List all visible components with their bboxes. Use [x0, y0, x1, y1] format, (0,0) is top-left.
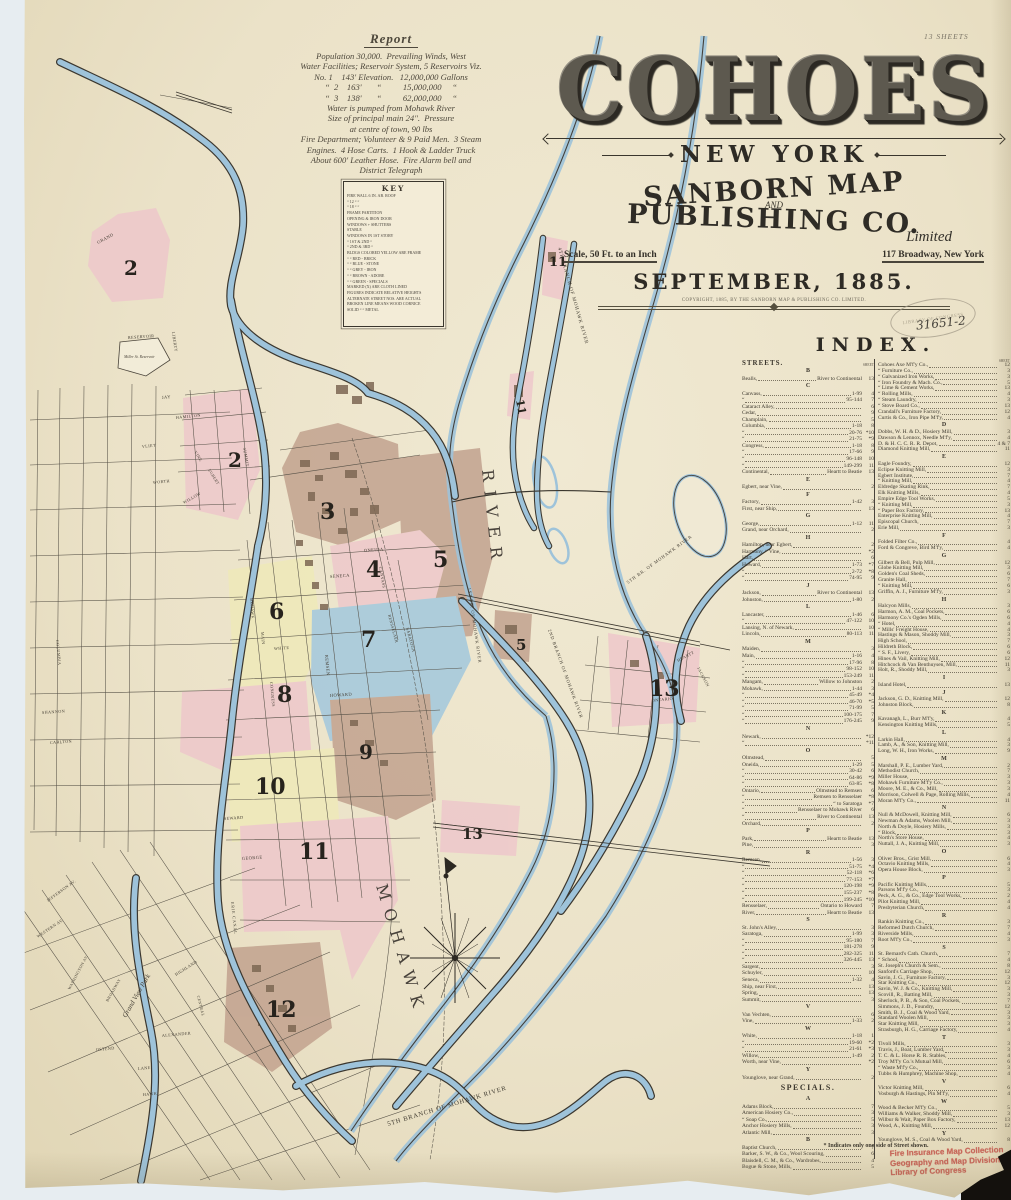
- leader-dots: [945, 701, 997, 702]
- index-entry-sheet: 2: [862, 527, 874, 534]
- index-entry-sheet: 13: [998, 683, 1010, 689]
- svg-text:WASHINGTON AV.: WASHINGTON AV.: [66, 954, 89, 991]
- leader-dots: [761, 504, 851, 505]
- leader-dots: [782, 1064, 861, 1065]
- index-letter-heading: L: [742, 603, 874, 612]
- index-entry-name: Egbert, near Vine,: [742, 484, 782, 491]
- leader-dots: [745, 819, 816, 820]
- index-entry-name: Columbia,: [742, 423, 765, 430]
- leader-dots: [935, 930, 997, 931]
- leader-dots: [745, 799, 812, 800]
- leader-dots: [939, 956, 997, 957]
- leader-dots: [757, 415, 861, 416]
- index-entry-range: 47-122: [846, 618, 862, 625]
- index-entry-name: Johnston,: [742, 597, 763, 604]
- leader-dots: [745, 703, 848, 704]
- index-entry-name: River,: [742, 910, 755, 917]
- leader-dots: [745, 901, 842, 902]
- leader-dots: [745, 745, 861, 746]
- leader-dots: [928, 672, 997, 673]
- leader-dots: [745, 434, 848, 435]
- leader-dots: [772, 1016, 861, 1017]
- index-entry-name: Kensington Knitting Mills,: [878, 723, 937, 729]
- leader-dots: [745, 1044, 848, 1045]
- report-line: Size of principal main 24". Pressure: [232, 113, 550, 123]
- index-entry-sheet: 4: [998, 1028, 1010, 1034]
- svg-text:CENTRAL: CENTRAL: [196, 995, 206, 1017]
- svg-text:ALEXANDER: ALEXANDER: [162, 1030, 192, 1038]
- leader-dots: [765, 760, 861, 761]
- report-line: No. 1 143' Elevation. 12,000,000 Gallons: [232, 72, 550, 82]
- index-entry-name: Mohawk,: [742, 686, 763, 693]
- leader-dots: [794, 1115, 861, 1116]
- leader-dots: [793, 1128, 861, 1129]
- leader-dots: [745, 1051, 848, 1052]
- leader-dots: [962, 1003, 997, 1004]
- leader-dots: [925, 910, 997, 911]
- leader-dots: [764, 690, 851, 691]
- index-entry-name: Nuttall, J. A., Knitting Mill,: [878, 842, 939, 848]
- index-entry-sheet: 11: [998, 447, 1010, 453]
- key-heading: KEY: [347, 184, 440, 193]
- index-entry-name: Vine,: [742, 1018, 754, 1025]
- svg-text:BROADWAY: BROADWAY: [105, 978, 122, 1003]
- leader-dots: [944, 1064, 997, 1065]
- leader-dots: [932, 860, 997, 861]
- leader-dots: [774, 1108, 861, 1109]
- index-entry-sheet: 3: [998, 868, 1010, 874]
- state-title: NEW YORK: [680, 143, 868, 167]
- index-entry-range: 1-32: [852, 977, 862, 984]
- leader-dots: [773, 1134, 861, 1135]
- index-entry-name: Griffin, A. J., Furniture M'f'y,: [878, 590, 943, 596]
- index-letter-heading: G: [742, 512, 874, 521]
- index-entry-name: Wood, A., Knitting Mill,: [878, 1124, 932, 1130]
- leader-dots: [950, 747, 997, 748]
- index-entry-sheet: 2: [862, 1018, 874, 1025]
- report-line: “ 3 138' “ 62,000,000 “: [232, 93, 550, 103]
- index-letter-heading: E: [742, 476, 874, 485]
- leader-dots: [790, 532, 861, 533]
- leader-dots: [929, 367, 997, 368]
- index-entry-sheet: *2: [862, 1059, 874, 1066]
- index-entry-sheet: 4: [998, 546, 1010, 552]
- index-entry-name: Canvass,: [742, 391, 762, 398]
- leader-dots: [745, 805, 832, 806]
- leader-dots: [959, 1076, 997, 1077]
- leader-dots: [963, 898, 997, 899]
- leader-dots: [935, 753, 997, 754]
- index-entry-range: 1-80: [852, 597, 862, 604]
- map-key-legend: KEY FIRE WALL 6 IN. AB. ROOF“ 12 “ ““ 18…: [343, 181, 444, 327]
- svg-text:3: 3: [320, 499, 335, 525]
- leader-dots: [900, 530, 997, 531]
- leader-dots: [948, 1058, 998, 1059]
- index-entry-range: 74-95: [849, 575, 862, 582]
- svg-text:COLUMBIA: COLUMBIA: [55, 640, 62, 666]
- leader-dots: [762, 1001, 861, 1002]
- leader-dots: [908, 582, 997, 583]
- leader-dots: [925, 512, 997, 513]
- index-section-heading: SPECIALS.: [742, 1081, 874, 1095]
- index-entry-sheet: 12: [998, 1124, 1010, 1130]
- index-entry-name: Root M'f'y Co.,: [878, 938, 912, 944]
- leader-dots: [936, 564, 997, 565]
- index-entry-sheet: 3: [998, 526, 1010, 532]
- leader-dots: [913, 942, 997, 943]
- leader-dots: [931, 451, 997, 452]
- svg-text:LIBERTY: LIBERTY: [171, 331, 179, 352]
- index-letter-heading: W: [742, 1025, 874, 1034]
- leader-dots: [935, 390, 997, 391]
- svg-text:JAY: JAY: [162, 394, 172, 400]
- index-entry-name: Island Hotel,: [878, 683, 906, 689]
- report-line: Water Facilities; Reservoir System, 5 Re…: [232, 61, 550, 71]
- leader-dots: [754, 840, 826, 841]
- leader-dots: [944, 785, 997, 786]
- leader-dots: [913, 507, 997, 508]
- index-columns: STREETS. SHEET B Bealls, River to Contin…: [742, 359, 1010, 1171]
- leader-dots: [768, 908, 819, 909]
- index-entry-name: Presbyterian Church,: [878, 906, 924, 912]
- index-entry-sheet: 3: [862, 842, 874, 849]
- leader-dots: [930, 489, 997, 490]
- leader-dots: [942, 968, 997, 969]
- leader-dots: [943, 384, 997, 385]
- leader-dots: [759, 995, 861, 996]
- leader-dots: [920, 524, 997, 525]
- index-entry-name: Newark,: [742, 734, 761, 741]
- leader-dots: [745, 949, 842, 950]
- leader-dots: [745, 454, 848, 455]
- index-entry-name: Opera House Block,: [878, 868, 923, 874]
- index-entry-sheet: 13: [862, 910, 874, 917]
- index-entry-name: Grand, near Orchard,: [742, 527, 789, 534]
- leader-dots: [933, 1128, 997, 1129]
- leader-dots: [958, 666, 997, 667]
- leader-dots: [921, 904, 997, 905]
- index-entry-sheet: 4: [998, 416, 1010, 422]
- index-entry-name: Holt, R., Shoddy Mill,: [878, 668, 927, 674]
- index-entry-name: “: [742, 718, 744, 725]
- leader-dots: [934, 518, 997, 519]
- leader-dots: [925, 924, 997, 925]
- sheet-header: SHEET: [863, 363, 874, 367]
- index-entry-name: Vosburgh & Hastings, Pin M'f'y,: [878, 1092, 949, 1098]
- leader-dots: [954, 434, 997, 435]
- leader-dots: [768, 1121, 861, 1122]
- title-block: COHOES NEW YORK SANBORN MAP AND PUBLISHI…: [538, 44, 1010, 313]
- index-entry-name: Atlantic Mill,: [742, 1130, 772, 1137]
- leader-dots: [764, 684, 818, 685]
- index-entry-sheet: 5: [998, 723, 1010, 729]
- report-line: District Telegraph: [232, 165, 550, 175]
- leader-dots: [795, 629, 861, 630]
- leader-dots: [762, 862, 851, 863]
- leader-dots: [793, 1169, 861, 1170]
- report-line: Engines. 4 Hose Carts. 1 Hook & Ladder T…: [232, 145, 550, 155]
- index-col1-header: STREETS. SHEET: [742, 359, 874, 367]
- index-entry-sheet: 4: [998, 1072, 1010, 1078]
- leader-dots: [793, 547, 861, 548]
- leader-dots: [952, 637, 997, 638]
- flourish-left: [602, 155, 672, 156]
- leader-dots: [766, 428, 851, 429]
- index-entry-sheet: *11: [862, 740, 874, 747]
- index-entry-name: Lincoln,: [742, 631, 760, 638]
- index-entry-sheet: 4: [998, 906, 1010, 912]
- index-entry-name: First, near Ship,: [742, 506, 777, 513]
- library-of-congress-stamp: Fire Insurance Map Collection Geography …: [890, 1145, 1011, 1178]
- leader-dots: [908, 643, 997, 644]
- report-line: Fire Department; Volunteer & 9 Paid Men.…: [232, 134, 550, 144]
- index-entry-name: Long, W. H., Iron Works,: [878, 749, 934, 755]
- leader-dots: [950, 1096, 997, 1097]
- leader-dots: [913, 649, 997, 650]
- index-entry-name: Worth, near Vine,: [742, 1059, 781, 1066]
- leader-dots: [745, 962, 842, 963]
- index-letter-heading: R: [742, 849, 874, 858]
- leader-dots: [944, 550, 997, 551]
- svg-text:WORTH: WORTH: [153, 478, 171, 485]
- leader-dots: [778, 1149, 861, 1150]
- leader-dots: [761, 651, 861, 652]
- index-entry-sheet: 11: [862, 631, 874, 638]
- leader-dots: [764, 936, 851, 937]
- svg-text:13: 13: [462, 825, 483, 843]
- index-entry-name: Remsen,: [742, 857, 761, 864]
- index-entry-name: Moran M'f'y Co.,: [878, 799, 916, 805]
- index-letter-heading: C: [742, 382, 874, 391]
- index-entry-name: Continental,: [742, 469, 769, 476]
- leader-dots: [944, 767, 997, 768]
- leader-dots: [762, 825, 861, 826]
- index-entry-name: Saratoga,: [742, 931, 763, 938]
- leader-dots: [754, 560, 861, 561]
- report-line: at centre of town, 90 lbs: [232, 124, 550, 134]
- leader-dots: [971, 797, 997, 798]
- leader-dots: [769, 421, 861, 422]
- leader-dots: [745, 881, 845, 882]
- leader-dots: [755, 1023, 851, 1024]
- svg-text:5TH BR. OF MOHAWK RIVER: 5TH BR. OF MOHAWK RIVER: [626, 534, 693, 585]
- index-entry-name: Johnston Block,: [878, 703, 913, 709]
- map-scale: Scale, 50 Ft. to an Inch: [564, 250, 657, 263]
- index-letter-heading: V: [742, 1003, 874, 1012]
- leader-dots: [939, 445, 996, 446]
- index-entry-name: Orchard,: [742, 821, 761, 828]
- index-entry-range: 95-144: [846, 397, 862, 404]
- leader-dots: [927, 472, 997, 473]
- publisher-address: 117 Broadway, New York: [882, 250, 984, 263]
- index-letter-heading: O: [742, 747, 874, 756]
- leader-dots: [822, 1162, 861, 1163]
- index-entry-name: Summit,: [742, 997, 761, 1004]
- index-letter-heading: A: [742, 1095, 874, 1104]
- leader-dots: [745, 888, 842, 889]
- leader-dots: [770, 474, 826, 475]
- leader-dots: [766, 616, 851, 617]
- leader-dots: [745, 942, 845, 943]
- svg-text:2: 2: [124, 256, 138, 280]
- leader-dots: [944, 594, 997, 595]
- leader-dots: [957, 1122, 997, 1123]
- index-entry-range: 1-42: [852, 499, 862, 506]
- index-entry-sheet: 9: [862, 718, 874, 725]
- leader-dots: [907, 687, 997, 688]
- leader-dots: [745, 573, 850, 574]
- svg-text:9: 9: [359, 740, 373, 764]
- index-col2-rows: Cohoes Axe M'f'y Co., 12 “ Furniture Co.…: [878, 363, 1010, 1144]
- leader-dots: [745, 710, 848, 711]
- index-entry-name: Ford & Congreve, Bird M'f'y,: [878, 546, 943, 552]
- leader-dots: [942, 620, 997, 621]
- key-line: SOLID “ “ METAL: [347, 307, 440, 313]
- leader-dots: [762, 595, 816, 596]
- leader-dots: [764, 975, 861, 976]
- index-entry-name: Congress,: [742, 443, 764, 450]
- leader-dots: [931, 866, 998, 867]
- svg-text:SHANNON: SHANNON: [42, 708, 66, 715]
- index-entry-range: 1-49: [852, 1053, 862, 1060]
- leader-dots: [745, 461, 845, 462]
- svg-text:5: 5: [516, 636, 526, 654]
- leader-dots: [953, 823, 997, 824]
- index-entry-sheet: 3: [998, 668, 1010, 674]
- leader-dots: [796, 1079, 861, 1080]
- svg-text:VLIET: VLIET: [142, 443, 157, 449]
- svg-text:LANE: LANE: [138, 1065, 151, 1071]
- scale-row: Scale, 50 Ft. to an Inch 117 Broadway, N…: [538, 246, 1010, 263]
- leader-dots: [745, 697, 848, 698]
- index-entry-sheet: 11: [998, 799, 1010, 805]
- index-entry-sheet: 3: [998, 590, 1010, 596]
- index-column-specials: SHEET Cohoes Axe M'f'y Co., 12 “ Furnitu…: [874, 359, 1010, 1159]
- index-entry-sheet: 3: [862, 1130, 874, 1137]
- index-entry-range: River to Continental: [817, 814, 862, 821]
- leader-dots: [756, 914, 826, 915]
- report-heading: Report: [364, 31, 418, 48]
- index-entry-sheet: 9: [862, 575, 874, 582]
- leader-dots: [947, 979, 997, 980]
- leader-dots: [926, 576, 997, 577]
- key-lines: FIRE WALL 6 IN. AB. ROOF“ 12 “ ““ 18 “ “…: [347, 193, 440, 313]
- leader-dots: [914, 477, 997, 478]
- leader-dots: [758, 380, 816, 381]
- leader-dots: [944, 419, 997, 420]
- leader-dots: [760, 766, 851, 767]
- leader-dots: [761, 792, 815, 793]
- leader-dots: [938, 727, 997, 728]
- index-entry-sheet: 2: [862, 1075, 874, 1082]
- leader-dots: [953, 440, 997, 441]
- svg-text:12: 12: [266, 997, 297, 1023]
- svg-text:5: 5: [433, 547, 448, 573]
- leader-dots: [778, 988, 861, 989]
- streets-header: STREETS.: [742, 359, 783, 367]
- leader-dots: [745, 773, 848, 774]
- svg-text:11: 11: [513, 398, 528, 415]
- index-entry-range: Heartt to Beatie: [827, 910, 862, 917]
- index-entry-sheet: 2: [862, 484, 874, 491]
- title-rule: [546, 138, 1002, 139]
- leader-dots: [953, 817, 997, 818]
- leader-dots: [936, 501, 997, 502]
- leader-dots: [745, 723, 842, 724]
- leader-dots: [826, 1156, 862, 1157]
- leader-dots: [953, 991, 997, 992]
- svg-text:ERIE CANAL: ERIE CANAL: [230, 902, 238, 935]
- leader-dots: [745, 580, 848, 581]
- leader-dots: [778, 510, 861, 511]
- index-col1-rows: B Bealls, River to Continental 13 C: [742, 367, 874, 1171]
- leader-dots: [935, 721, 997, 722]
- leader-dots: [918, 402, 997, 403]
- svg-text:OSTEND: OSTEND: [96, 1045, 115, 1052]
- leader-dots: [776, 408, 861, 409]
- index-entry-name: Diamond Knitting Mill,: [878, 447, 930, 453]
- index-entry-sheet: 13: [862, 469, 874, 476]
- leader-dots: [745, 895, 842, 896]
- svg-text:HIGHLAND: HIGHLAND: [174, 959, 198, 977]
- leader-dots: [760, 1057, 851, 1058]
- index-entry-name: Tubbs & Humphrey, Machine Shop,: [878, 1072, 958, 1078]
- leader-dots: [762, 567, 851, 568]
- leader-dots: [745, 441, 848, 442]
- leader-dots: [745, 671, 845, 672]
- leader-dots: [947, 829, 997, 830]
- index-entry-range: Heartt to Beatie: [827, 469, 862, 476]
- index-entry-name: Lancaster,: [742, 612, 765, 619]
- leader-dots: [763, 395, 851, 396]
- leader-dots: [924, 872, 997, 873]
- leader-dots: [917, 802, 997, 803]
- city-title: COHOES: [538, 42, 1010, 138]
- leader-dots: [945, 614, 997, 615]
- leader-dots: [745, 868, 848, 869]
- svg-text:7: 7: [361, 627, 376, 653]
- index-entry-sheet: 13: [862, 376, 874, 383]
- leader-dots: [745, 716, 842, 717]
- index-entry-sheet: 3: [862, 997, 874, 1004]
- leader-dots: [940, 846, 997, 847]
- leader-dots: [756, 658, 851, 659]
- leader-dots: [745, 467, 842, 468]
- index-entry-sheet: 8: [998, 703, 1010, 709]
- index-letter-heading: P: [742, 827, 874, 836]
- index-letter-heading: Y: [742, 1066, 874, 1075]
- leader-dots: [745, 664, 848, 665]
- state-row: NEW YORK: [538, 143, 1010, 167]
- index-entry-range: 326-445: [844, 957, 862, 964]
- index-entry-name: Pine,: [742, 842, 753, 849]
- index-entry-sheet: 3: [998, 842, 1010, 848]
- index-entry-range: 1-33: [852, 1018, 862, 1025]
- leader-dots: [928, 886, 997, 887]
- svg-text:JEFFERSON AV.: JEFFERSON AV.: [46, 878, 77, 902]
- report-line: “ 2 163' “ 15,000,000 “: [232, 82, 550, 92]
- leader-dots: [745, 779, 848, 780]
- index-entry-sheet: 2: [862, 597, 874, 604]
- leader-dots: [924, 570, 997, 571]
- leader-dots: [951, 1014, 997, 1015]
- leader-dots: [782, 553, 861, 554]
- leader-dots: [914, 396, 997, 397]
- index-letter-heading: F: [742, 491, 874, 500]
- index-letter-heading: J: [742, 582, 874, 591]
- index-entry-sheet: 2: [862, 821, 874, 828]
- leader-dots: [760, 525, 850, 526]
